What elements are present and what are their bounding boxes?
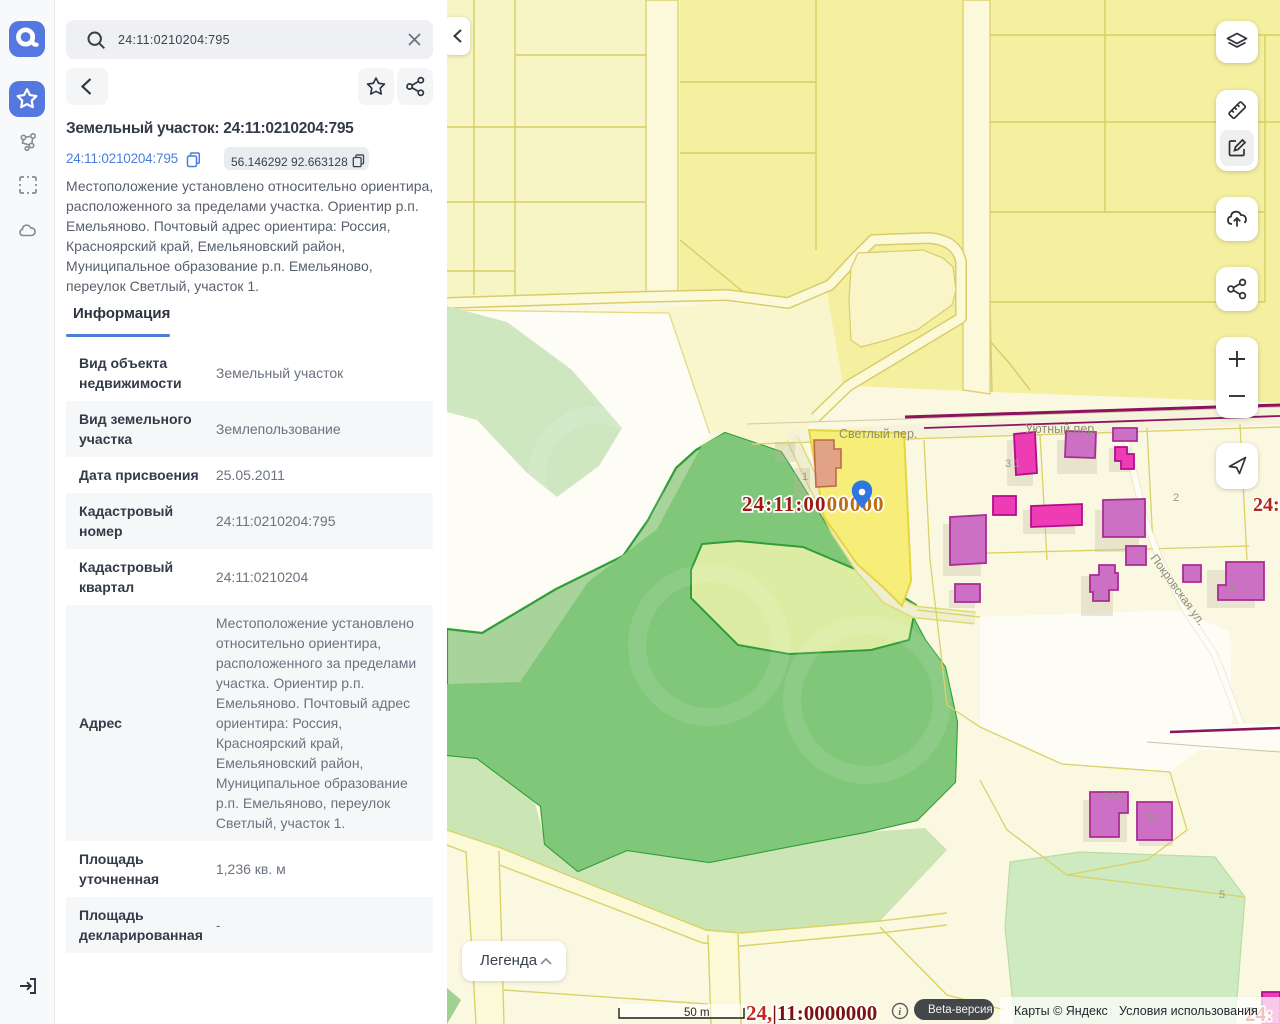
svg-text:Светлый пер.: Светлый пер. xyxy=(839,427,917,441)
svg-text:i: i xyxy=(898,1007,901,1018)
svg-text:50 m: 50 m xyxy=(684,1007,710,1019)
svg-text:24:: 24: xyxy=(1253,494,1280,516)
svg-text:14А: 14А xyxy=(1103,791,1123,803)
svg-text:3 1: 3 1 xyxy=(1005,458,1020,470)
svg-text:Уютный пер.: Уютный пер. xyxy=(1025,422,1098,436)
svg-text:Beta-версия: Beta-версия xyxy=(928,1004,993,1016)
svg-text:1: 1 xyxy=(802,471,808,483)
svg-text:14: 14 xyxy=(1147,811,1159,823)
svg-text:5: 5 xyxy=(1219,889,1225,901)
svg-text:3: 3 xyxy=(1095,591,1101,603)
svg-text:24,|11:0000000: 24,|11:0000000 xyxy=(746,1001,877,1024)
svg-text:Условия использования: Условия использования xyxy=(1119,1004,1258,1018)
svg-text:Карты © Яндекс: Карты © Яндекс xyxy=(1014,1004,1108,1018)
svg-text:2: 2 xyxy=(1173,492,1179,504)
svg-text:4: 4 xyxy=(1228,582,1234,594)
